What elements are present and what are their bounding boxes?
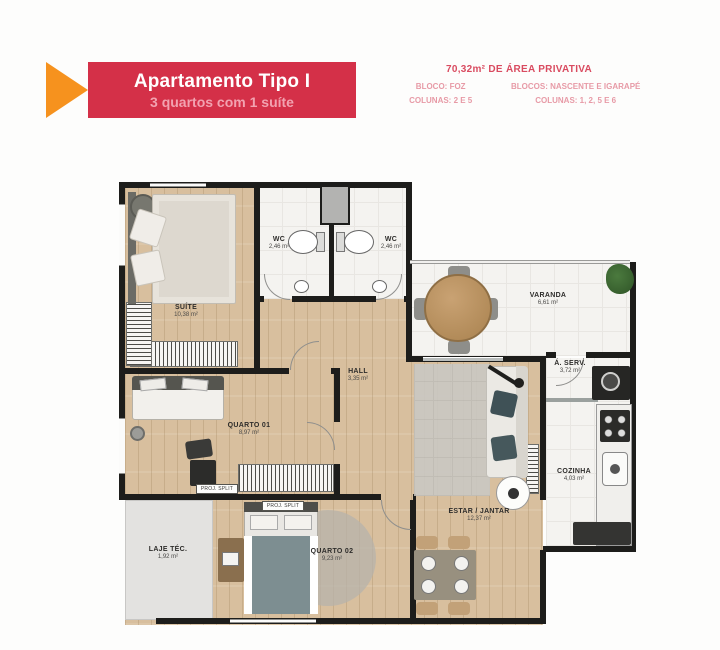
sofa-cushion-2 bbox=[490, 434, 517, 461]
wall-aserv-top-b bbox=[586, 352, 632, 358]
room-label-aserv: Á. SERV.3,72 m² bbox=[546, 360, 594, 374]
room-label-wc1: WC2,46 m² bbox=[262, 236, 296, 250]
room-label-quarto02: QUARTO 029,23 m² bbox=[300, 548, 364, 562]
plate bbox=[421, 556, 436, 571]
private-area-heading: 70,32m² DE ÁREA PRIVATIVA bbox=[384, 64, 654, 75]
wall-aserv-top-a bbox=[546, 352, 556, 358]
blocks-nascente-igarape-info: BLOCOS: NASCENTE E IGARAPÉ COLUNAS: 1, 2… bbox=[497, 80, 654, 109]
wall-right-upper bbox=[406, 182, 412, 362]
varanda-sliding-door bbox=[423, 357, 503, 361]
kitchen-sink-drain bbox=[610, 464, 620, 474]
aserv-kitchen-halfwall bbox=[546, 398, 598, 402]
suite-left-window bbox=[119, 204, 125, 266]
plate-2 bbox=[454, 556, 469, 571]
plant-icon bbox=[606, 264, 634, 294]
page-subtitle: 3 quartos com 1 suíte bbox=[150, 94, 294, 110]
estar-rug bbox=[414, 364, 490, 496]
varanda-railing bbox=[410, 260, 630, 264]
wall-estar-right-b bbox=[540, 550, 546, 624]
floor-lamp-head bbox=[514, 378, 524, 388]
quarto02-pillow bbox=[250, 515, 278, 530]
wall-quarto01-bottom bbox=[119, 494, 381, 500]
quarto02-pillow-2 bbox=[284, 515, 312, 530]
room-label-cozinha: COZINHA4,03 m² bbox=[548, 468, 600, 482]
floorplan: PROJ. SPLIT PROJ. SPLIT SUÍTE10,38 m² WC… bbox=[118, 178, 642, 636]
title-banner: Apartamento Tipo I 3 quartos com 1 suíte bbox=[88, 62, 356, 118]
wall-wc-bottom-a bbox=[258, 296, 264, 302]
dining-chair-3 bbox=[416, 602, 438, 615]
wall-wc-bottom-b bbox=[292, 296, 376, 302]
area-info-block: 70,32m² DE ÁREA PRIVATIVA BLOCO: FOZ COL… bbox=[384, 64, 654, 109]
bloco-label: BLOCO: FOZ bbox=[384, 80, 497, 94]
proj-split-text: PROJ. SPLIT bbox=[201, 486, 233, 492]
colunas-label-2: COLUNAS: 1, 2, 5 E 6 bbox=[497, 94, 654, 108]
dining-chair bbox=[416, 536, 438, 549]
banner-arrow-icon bbox=[46, 62, 88, 118]
suite-top-window bbox=[150, 183, 206, 187]
blocos-label: BLOCOS: NASCENTE E IGARAPÉ bbox=[497, 80, 654, 94]
wall-estar-right-a bbox=[540, 356, 546, 500]
kitchen-lower-counter bbox=[573, 522, 631, 545]
proj-split-tag: PROJ. SPLIT bbox=[196, 484, 238, 494]
colunas-label: COLUNAS: 2 E 5 bbox=[384, 94, 497, 108]
washer-drum bbox=[601, 372, 620, 391]
stove-icon bbox=[600, 410, 630, 442]
dining-chair-4 bbox=[448, 602, 470, 615]
wall-bottom bbox=[156, 618, 546, 624]
quarto01-wall-light bbox=[130, 426, 145, 441]
quarto01-desk bbox=[190, 460, 216, 486]
dining-chair-2 bbox=[448, 536, 470, 549]
room-label-wc2: WC2,46 m² bbox=[374, 236, 408, 250]
proj-split-text-2: PROJ. SPLIT bbox=[267, 503, 299, 509]
room-label-laje-tecnica: LAJE TÉC.1,92 m² bbox=[132, 546, 204, 560]
wall-suite-bottom bbox=[119, 368, 289, 374]
wc2-sink-icon bbox=[372, 280, 387, 293]
laptop-icon bbox=[222, 552, 239, 566]
quarto01-wardrobe-hatch bbox=[238, 464, 334, 492]
suite-pillow-2 bbox=[130, 249, 166, 287]
page-title: Apartamento Tipo I bbox=[134, 71, 310, 93]
room-label-varanda: VARANDA6,61 m² bbox=[506, 292, 590, 306]
proj-split-tag-2: PROJ. SPLIT bbox=[262, 501, 304, 511]
block-foz-info: BLOCO: FOZ COLUNAS: 2 E 5 bbox=[384, 80, 497, 109]
quarto01-window bbox=[119, 418, 125, 474]
quarto02-window bbox=[230, 619, 316, 623]
sofa-cushion bbox=[490, 390, 518, 418]
room-label-estar-jantar: ESTAR / JANTAR12,37 m² bbox=[434, 508, 524, 522]
quarto01-chair bbox=[185, 438, 213, 459]
varanda-table bbox=[424, 274, 492, 342]
outside-mask bbox=[412, 182, 544, 262]
wall-suite-right bbox=[254, 185, 260, 370]
plate-3 bbox=[421, 579, 436, 594]
suite-bed bbox=[152, 194, 236, 304]
wc1-sink-icon bbox=[294, 280, 309, 293]
side-table-center bbox=[508, 488, 519, 499]
wall-kitchen-bottom bbox=[543, 546, 636, 552]
varanda-chair-2 bbox=[448, 340, 470, 354]
wall-wc-bottom-c bbox=[404, 296, 410, 302]
room-label-quarto01: QUARTO 018,97 m² bbox=[214, 422, 284, 436]
room-label-suite: SUÍTE10,38 m² bbox=[146, 304, 226, 318]
room-label-hall: HALL3,35 m² bbox=[336, 368, 380, 382]
ventilation-shaft bbox=[320, 185, 350, 225]
wc2-toilet-icon bbox=[344, 230, 374, 254]
laje-tecnica-slab bbox=[125, 500, 213, 620]
plate-4 bbox=[454, 579, 469, 594]
floorplan-page: { "header": { "title": "Apartamento Tipo… bbox=[0, 0, 720, 650]
